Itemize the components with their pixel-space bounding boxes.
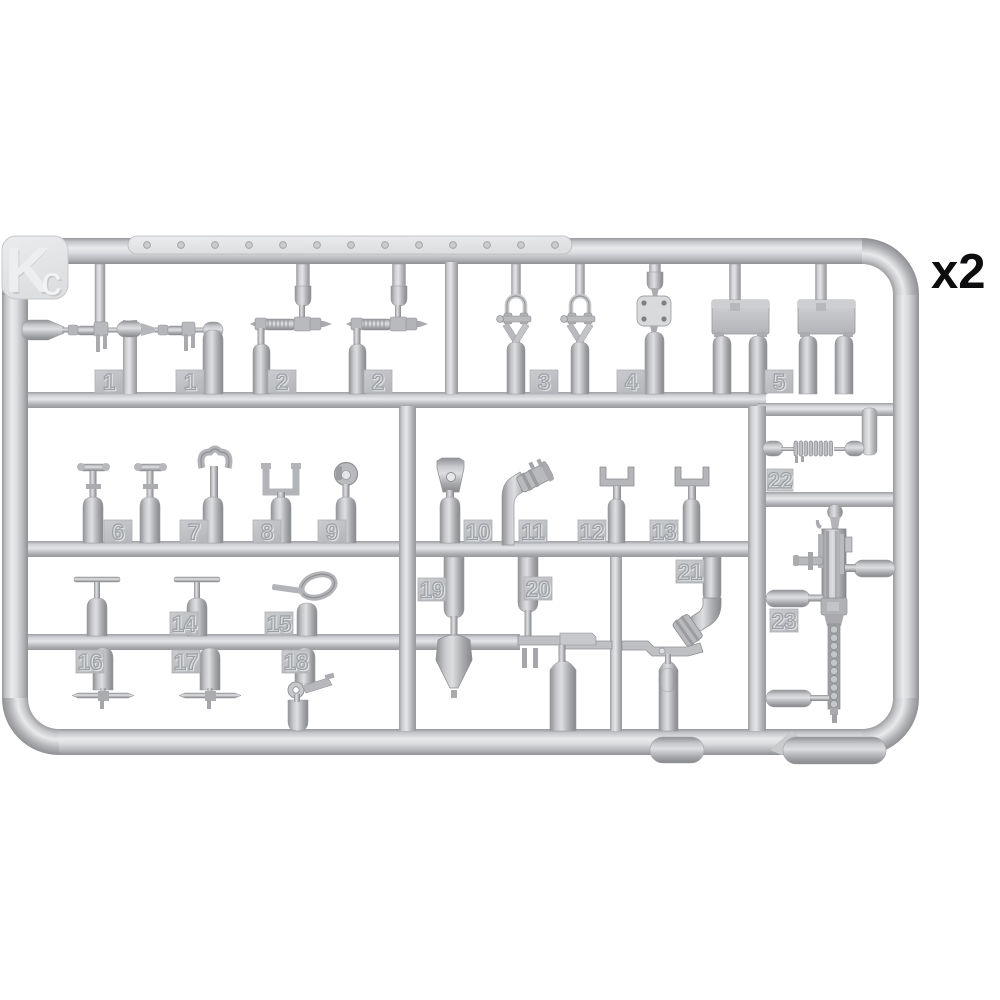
svg-text:c: c (42, 260, 62, 304)
svg-text:1: 1 (184, 369, 196, 394)
svg-text:12: 12 (580, 519, 604, 544)
svg-text:14: 14 (172, 611, 197, 636)
svg-text:20: 20 (526, 576, 550, 601)
svg-text:2: 2 (276, 369, 288, 394)
svg-text:21: 21 (678, 559, 702, 584)
svg-text:17: 17 (174, 649, 198, 674)
svg-text:19: 19 (420, 577, 444, 602)
svg-text:3: 3 (538, 369, 550, 394)
svg-text:15: 15 (267, 611, 291, 636)
svg-text:6: 6 (112, 519, 124, 544)
svg-text:22: 22 (768, 468, 792, 493)
svg-text:1: 1 (103, 369, 115, 394)
svg-text:16: 16 (78, 649, 102, 674)
svg-text:x2: x2 (931, 245, 986, 299)
svg-text:9: 9 (326, 519, 338, 544)
svg-text:10: 10 (466, 519, 490, 544)
svg-text:2: 2 (372, 369, 384, 394)
svg-text:5: 5 (773, 369, 785, 394)
svg-text:4: 4 (625, 369, 638, 394)
svg-text:7: 7 (188, 519, 200, 544)
svg-text:13: 13 (652, 519, 676, 544)
svg-text:23: 23 (772, 608, 796, 633)
svg-text:8: 8 (261, 519, 273, 544)
svg-text:18: 18 (284, 649, 308, 674)
svg-text:11: 11 (521, 519, 544, 544)
